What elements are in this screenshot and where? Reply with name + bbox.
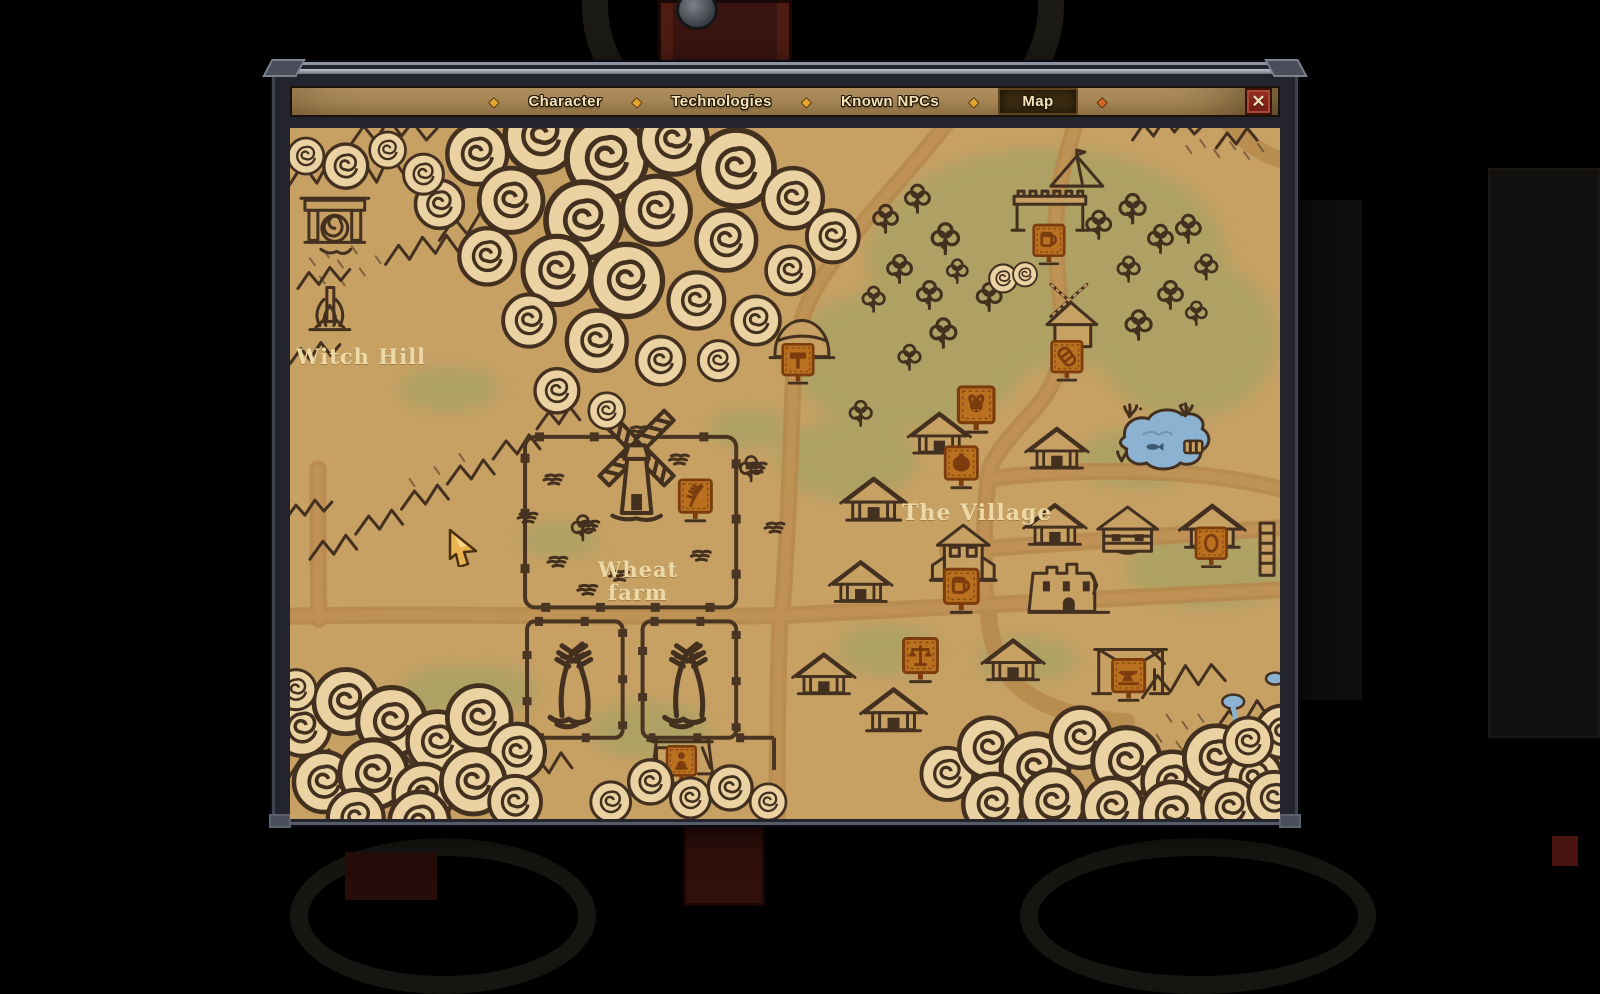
diamond-separator-icon: ◆ — [632, 95, 641, 109]
tab-character[interactable]: Character — [518, 89, 612, 114]
panel-corner-bottom-left — [269, 814, 291, 828]
smithy-sign-anvil — [1113, 659, 1145, 700]
diamond-separator-icon: ◆ — [969, 95, 978, 109]
village-log-house — [1098, 507, 1158, 553]
background-rug-bottom-left — [345, 852, 437, 900]
map-window-panel: ◆ Character ◆ Technologies ◆ Known NPCs … — [272, 62, 1298, 825]
witch-hill-gate — [301, 198, 369, 253]
background-arc-bottom-left — [290, 838, 596, 994]
label-wheat-farm-line2: farm — [558, 581, 718, 604]
watchtower-ladder — [1260, 523, 1274, 575]
butcher-sign-bull — [958, 387, 994, 432]
label-the-village: The Village — [902, 500, 1052, 526]
diamond-separator-icon: ◆ — [802, 95, 811, 109]
village-house-4 — [829, 561, 891, 601]
panel-corner-top-right — [1264, 59, 1308, 77]
tab-technologies[interactable]: Technologies — [661, 89, 781, 114]
witch-hill-campfire — [310, 287, 350, 329]
panel-corner-top-left — [262, 59, 306, 77]
map-svg — [290, 128, 1280, 819]
tab-known-npcs[interactable]: Known NPCs — [831, 89, 949, 114]
potter-sign-jug — [945, 447, 977, 488]
close-icon: ✕ — [1251, 92, 1265, 112]
market-sign-scales — [904, 638, 938, 681]
label-witch-hill: Witch Hill — [296, 344, 426, 369]
background-pillar-right — [1296, 200, 1362, 700]
village-house-8 — [861, 689, 927, 731]
diamond-separator-icon: ◆ — [1098, 95, 1107, 109]
background-wall-right — [1488, 168, 1600, 738]
tab-map[interactable]: Map — [998, 88, 1077, 115]
tab-row: ◆ Character ◆ Technologies ◆ Known NPCs … — [489, 88, 1107, 115]
background-lamp-bottom-right — [1552, 836, 1578, 866]
label-wheat-farm-line1: Wheat — [558, 558, 718, 581]
panel-corner-bottom-right — [1279, 814, 1301, 828]
panel-metal-edge — [281, 69, 1289, 74]
close-button[interactable]: ✕ — [1245, 88, 1272, 115]
background-arc-bottom-right — [1020, 838, 1376, 994]
tab-bar: ◆ Character ◆ Technologies ◆ Known NPCs … — [290, 86, 1280, 117]
diamond-separator-icon: ◆ — [489, 95, 498, 109]
farm-sign-wheat — [679, 480, 711, 521]
pond-barrel — [1184, 441, 1202, 453]
map-view: Witch Hill Wheat farm The Village — [290, 128, 1280, 819]
background-pillar-bottom — [683, 822, 765, 906]
game-screen: ◆ Character ◆ Technologies ◆ Known NPCs … — [0, 0, 1600, 900]
label-wheat-farm: Wheat farm — [558, 558, 718, 604]
